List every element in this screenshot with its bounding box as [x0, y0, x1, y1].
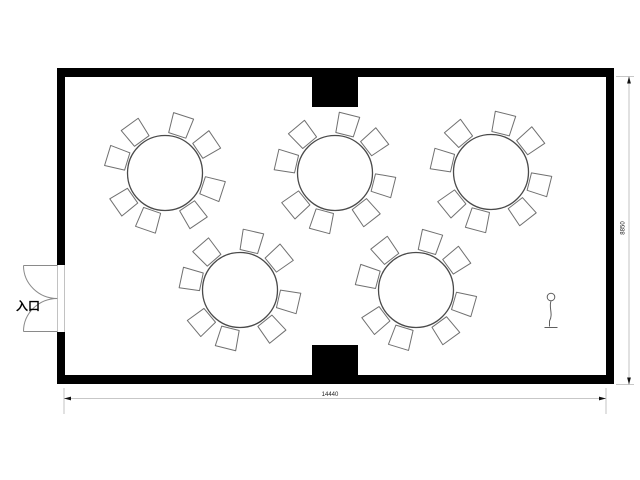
- dim-height-arrow-top: [627, 77, 631, 84]
- chair: [274, 149, 299, 174]
- chair: [199, 175, 225, 201]
- round-table: [203, 253, 278, 328]
- chair: [527, 171, 552, 196]
- round-table: [298, 136, 373, 211]
- pillar: [312, 345, 358, 384]
- chair: [355, 264, 380, 290]
- dim-width-arrow-left: [64, 397, 71, 401]
- dimension-height: 8850: [616, 77, 634, 385]
- chair: [388, 325, 414, 351]
- pillar: [312, 68, 358, 107]
- scale-figure: [545, 293, 558, 327]
- round-table: [379, 253, 454, 328]
- wall-left-lower: [57, 332, 65, 384]
- dim-height-arrow-bottom: [627, 378, 631, 385]
- chair: [167, 113, 193, 139]
- figure-head: [547, 293, 555, 301]
- entrance-door: 入口: [16, 265, 65, 332]
- chair: [430, 148, 455, 173]
- chair: [105, 145, 131, 171]
- chair: [417, 229, 443, 254]
- banquet-table-group: [274, 112, 396, 233]
- dimension-width: 14440: [64, 388, 606, 414]
- banquet-table-group: [355, 229, 476, 350]
- chair: [239, 229, 264, 254]
- chair: [309, 208, 335, 233]
- round-table: [128, 136, 203, 211]
- tables-and-chairs: [105, 111, 552, 350]
- chair: [215, 326, 240, 351]
- round-table: [454, 135, 529, 210]
- wall-left-upper: [57, 68, 65, 265]
- chair: [276, 289, 301, 314]
- dim-height-label: 8850: [621, 221, 627, 235]
- entrance-label: 入口: [16, 299, 40, 313]
- wall-right: [606, 68, 614, 384]
- dim-width-arrow-right: [599, 397, 606, 401]
- banquet-table-group: [105, 113, 226, 234]
- chair: [179, 267, 203, 292]
- figure-body: [550, 301, 552, 327]
- chair: [465, 207, 491, 232]
- chair: [451, 291, 476, 317]
- chair: [136, 207, 163, 233]
- dim-width-label: 14440: [322, 392, 339, 398]
- floorplan-canvas: 入口 14440 8850: [0, 0, 640, 480]
- floorplan-drawing: 入口 14440 8850: [0, 0, 640, 480]
- door-swing-arc-top: [24, 266, 58, 299]
- banquet-table-group: [179, 229, 301, 351]
- chair: [371, 172, 396, 197]
- chair: [334, 112, 359, 137]
- banquet-table-group: [430, 111, 552, 232]
- chair: [490, 111, 515, 136]
